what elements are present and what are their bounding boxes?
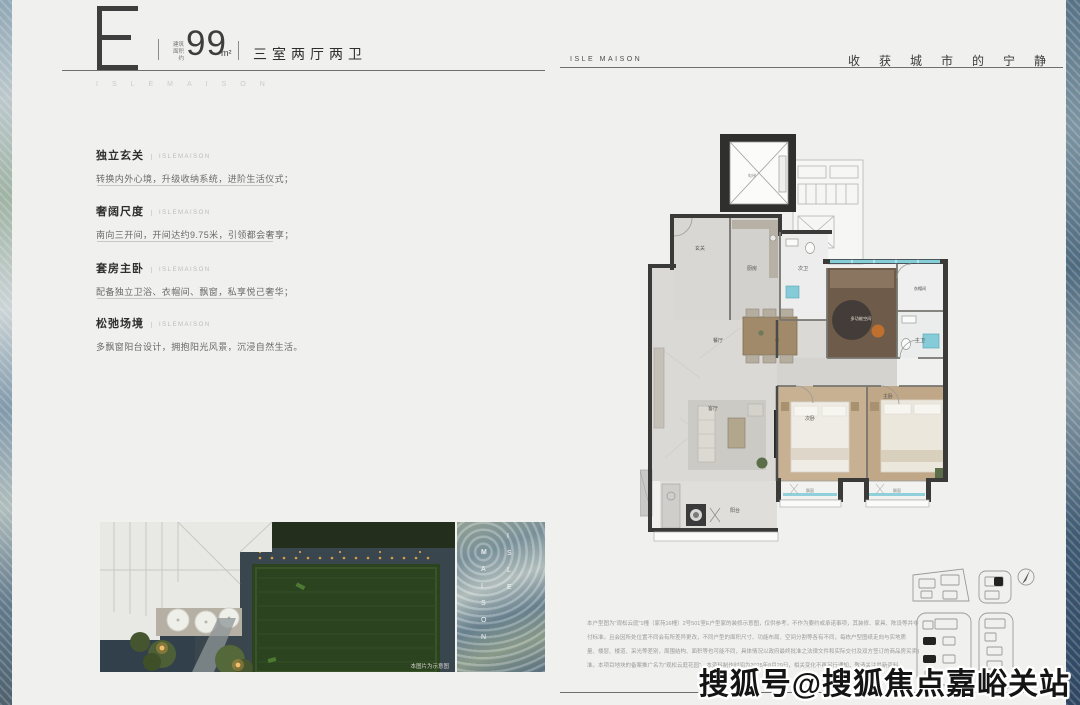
plan-letter-E (97, 6, 141, 71)
layout-text: 三室两厅两卫 (253, 44, 367, 64)
room-label-bedroom2: 次卧 (805, 415, 815, 422)
glass-letters-maison: M A I S O N (481, 544, 488, 646)
north-window (830, 260, 940, 263)
feature-title: 独立玄关 (96, 150, 144, 162)
room-label-elevator: 电梯 (748, 172, 756, 179)
glass-letters-isle: I S L E (507, 528, 513, 596)
feature-divider (97, 185, 273, 186)
area-unit: m² (221, 48, 232, 58)
room-label-living: 客厅 (708, 405, 718, 412)
feature-title: 松弛场境 (96, 318, 144, 330)
feature-brand: ISLEMAISON (151, 210, 211, 216)
keyplan-building-2 (979, 571, 1011, 603)
room-bath2 (780, 234, 828, 320)
floorplan: 电梯 (640, 118, 995, 568)
room-label-master-bath: 主卫 (915, 337, 925, 344)
room-entry (674, 218, 730, 320)
feature-divider (97, 241, 273, 242)
brochure-page: 建筑 面积约 99 m² 三室两厅两卫 ISLEMAISON 独立玄关ISLEM… (0, 0, 1080, 705)
area-prefix: 建筑 面积约 (170, 42, 184, 63)
feature-title: 套房主卧 (96, 263, 144, 275)
feature-brand: ISLEMAISON (151, 154, 211, 160)
right-glass-strip (1066, 0, 1080, 705)
room-label-closet: 衣帽间 (914, 285, 927, 292)
bed-master (870, 400, 943, 480)
left-glass-strip (0, 0, 12, 705)
header-divider-1 (158, 39, 159, 60)
room-label-master: 主卧 (883, 393, 893, 400)
hallway (777, 358, 897, 386)
room-label-balcony: 阳台 (730, 507, 740, 514)
room-label-bath2: 次卫 (798, 265, 808, 272)
disclaimer-line: 付标准。且会因所处位置不同会有所差异更改，不同户型的面积尺寸、功能布局、空间分割… (587, 631, 919, 645)
feature-desc: 配备独立卫浴、衣帽间、飘窗，私享悦己奢华； (96, 285, 396, 298)
brand-spaced: ISLEMAISON (96, 81, 279, 88)
room-label-multifunction: 多功能空间 (851, 315, 872, 322)
room-label-bay1: 飘窗 (806, 487, 814, 493)
disclaimer-line: 本户型图为"观松云庭"1幢（家苑16幢）2号501室E户型家的装修示意图，仅供参… (587, 617, 919, 631)
room-label-kitchen: 厨房 (747, 265, 757, 272)
feature-width: 奢阔尺度ISLEMAISON 南向三开间，开间达约9.75米，引领都会奢享； (96, 202, 396, 241)
feature-desc: 南向三开间，开间达约9.75米，引领都会奢享； (96, 228, 396, 241)
header-divider-2 (238, 41, 239, 60)
feature-desc: 转换内外心境，升级收纳系统，进阶生活仪式； (96, 172, 396, 185)
feature-divider (97, 298, 273, 299)
feature-desc: 多飘窗阳台设计，拥抱阳光风景，沉浸自然生活。 (96, 340, 396, 353)
feature-entry: 独立玄关ISLEMAISON 转换内外心境，升级收纳系统，进阶生活仪式； (96, 146, 396, 185)
living-set (688, 400, 777, 470)
room-label-bay2: 飘窗 (893, 487, 901, 493)
bed-bedroom2 (781, 402, 859, 472)
glass-brand-panel: I S L E M A I S O N (457, 522, 545, 672)
courtyard-aerial-photo: 本图片为示意图 (100, 522, 455, 672)
sohu-watermark: 搜狐号@搜狐焦点嘉峪关站 (545, 660, 1080, 705)
feature-brand: ISLEMAISON (151, 322, 211, 328)
room-label-entry: 玄关 (695, 245, 705, 252)
feature-relax: 松弛场境ISLEMAISON 多飘窗阳台设计，拥抱阳光风景，沉浸自然生活。 (96, 314, 396, 353)
elevator-shaft: 电梯 (720, 134, 796, 212)
compass-icon (1018, 569, 1034, 585)
photo-caption: 本图片为示意图 (410, 662, 449, 670)
dining-set (743, 309, 797, 363)
right-header-rule (560, 67, 1063, 68)
brand-name: ISLE MAISON (570, 56, 642, 63)
disclaimer-line: 量、楼层、楼道、采光等差别，周围结构、面积等也可能不同，具体情况以政府最终批准之… (587, 645, 919, 659)
room-label-dining: 餐厅 (713, 337, 723, 344)
feature-brand: ISLEMAISON (151, 267, 211, 273)
watermark-text: 搜狐号@搜狐焦点嘉峪关站 (699, 667, 1070, 701)
feature-master-suite: 套房主卧ISLEMAISON 配备独立卫浴、衣帽间、飘窗，私享悦己奢华； (96, 259, 396, 298)
left-header-rule (62, 70, 545, 71)
lawn (252, 564, 440, 672)
feature-title: 奢阔尺度 (96, 206, 144, 218)
